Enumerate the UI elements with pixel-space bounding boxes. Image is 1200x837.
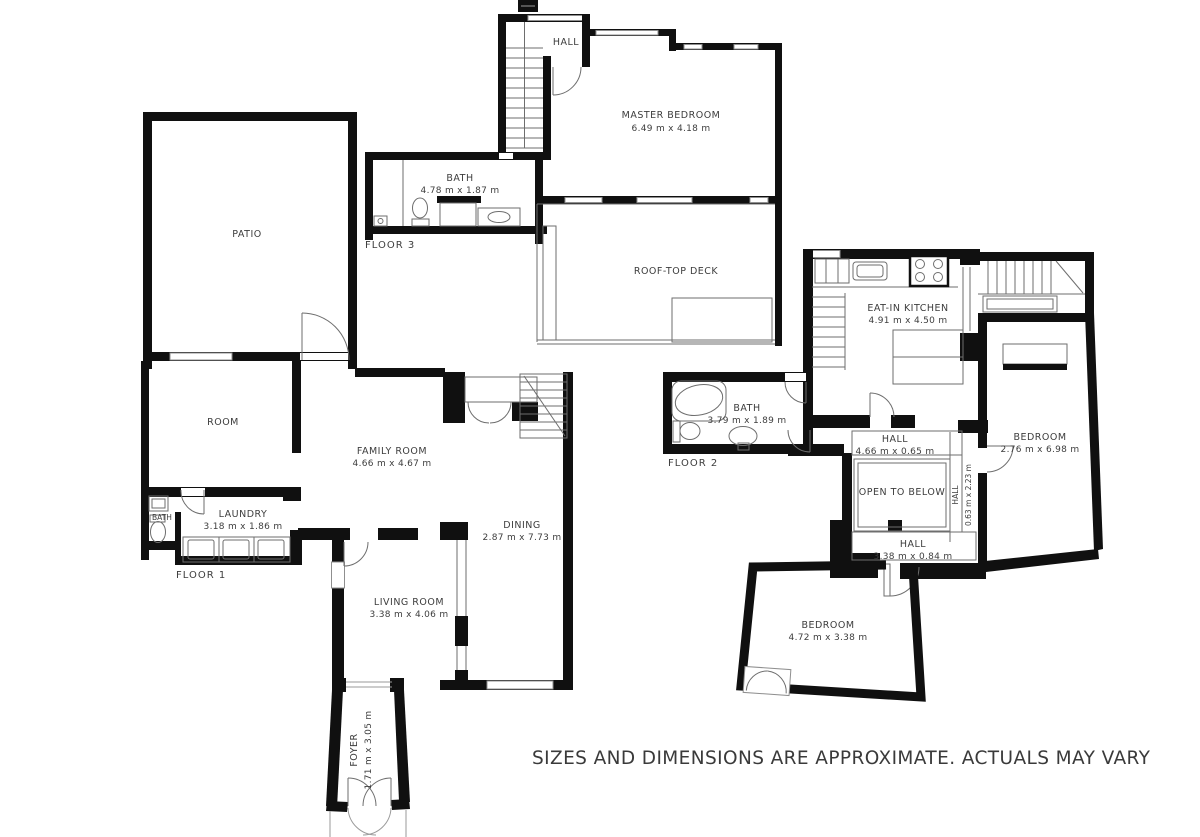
floor2-plan: EAT-IN KITCHEN 4.91 m x 4.50 m BEDROOM 2… [663, 249, 1103, 697]
bathtub-icon [440, 203, 476, 226]
bath-f2-dims: 3.79 m x 1.89 m [708, 416, 787, 426]
island-icon [893, 330, 963, 384]
hall-vertical-dims: 0.63 m x 2.23 m [964, 464, 973, 526]
bedroom-f2-label: BEDROOM [1013, 432, 1066, 443]
open-to-below-label: OPEN TO BELOW [859, 487, 946, 498]
toilet-icon [673, 421, 700, 442]
floor3-walls [365, 0, 782, 346]
laundry-dims: 3.18 m x 1.86 m [204, 522, 283, 532]
bedroom-f2-dims: 2.76 m x 6.98 m [1001, 445, 1080, 455]
living-room-label: LIVING ROOM [374, 597, 444, 608]
living-room-dims: 3.38 m x 4.06 m [370, 610, 449, 620]
door-arc-kitchen [870, 393, 894, 417]
dining-dims: 2.87 m x 7.73 m [483, 533, 562, 543]
bath-f3-label: BATH [446, 173, 473, 184]
stairs-kitchen-icon [812, 293, 845, 370]
stairs-f3-icon [506, 22, 543, 148]
room-label: ROOM [207, 417, 239, 428]
sink-icon [853, 262, 887, 280]
hall-lower-label: HALL [900, 539, 926, 550]
toilet-icon [412, 198, 429, 226]
stove-icon [910, 256, 948, 286]
bath-f3-dims: 4.78 m x 1.87 m [421, 186, 500, 196]
sink-icon [149, 496, 168, 511]
living-dining-divider-lines [457, 540, 466, 670]
master-bedroom-dims: 6.49 m x 4.18 m [632, 124, 711, 134]
hall-lower-dims: 3.38 m x 0.84 m [874, 552, 953, 562]
door-arc-hall-master [553, 67, 581, 95]
hall-vertical-label: HALL [951, 485, 960, 505]
stairs-f2-icon [978, 261, 1085, 312]
laundry-label: LAUNDRY [219, 509, 268, 520]
door-arc-bath-ne [785, 382, 806, 403]
disclaimer-text: SIZES AND DIMENSIONS ARE APPROXIMATE. AC… [532, 748, 1151, 769]
hall-f3-label: HALL [553, 37, 579, 48]
patio-label: PATIO [232, 229, 261, 240]
bath-f2-label: BATH [733, 403, 760, 414]
sink-small-icon [374, 216, 387, 226]
window-bedroom-lower [743, 666, 791, 695]
desk-icon [1003, 344, 1067, 370]
roof-top-deck-label: ROOF-TOP DECK [634, 266, 719, 277]
floor3-plan: HALL MASTER BEDROOM 6.49 m x 4.18 m BATH… [365, 0, 782, 346]
dining-label: DINING [503, 520, 541, 531]
floor1-plan: PATIO ROOM FAMILY ROOM 4.66 m x 4.67 m L… [141, 112, 573, 837]
bath-f1-label: BATH [152, 513, 172, 522]
floor1-label: FLOOR 1 [176, 570, 226, 581]
floor3-label: FLOOR 3 [365, 240, 415, 251]
foyer-dims: 1.71 m x 3.05 m [364, 711, 374, 790]
stairs-f1-icon [520, 374, 567, 438]
hall-upper-dims: 4.66 m x 0.65 m [856, 447, 935, 457]
family-room-dims: 4.66 m x 4.67 m [353, 459, 432, 469]
eat-in-kitchen-label: EAT-IN KITCHEN [867, 303, 948, 314]
foyer-label: FOYER [349, 733, 360, 766]
floor-plan: HALL MASTER BEDROOM 6.49 m x 4.18 m BATH… [0, 0, 1200, 837]
kitchen-opening-lines [963, 267, 970, 331]
master-bedroom-label: MASTER BEDROOM [622, 110, 721, 121]
bedroom-lower-dims: 4.72 m x 3.38 m [789, 633, 868, 643]
vanity-sink-icon [478, 208, 520, 226]
hall-upper-label: HALL [882, 434, 908, 445]
floor2-label: FLOOR 2 [668, 458, 718, 469]
bathtub-icon [672, 380, 726, 421]
bedroom-lower-label: BEDROOM [801, 620, 854, 631]
door-arc-living [344, 542, 368, 566]
family-room-label: FAMILY ROOM [357, 446, 427, 457]
eat-in-kitchen-dims: 4.91 m x 4.50 m [869, 316, 948, 326]
